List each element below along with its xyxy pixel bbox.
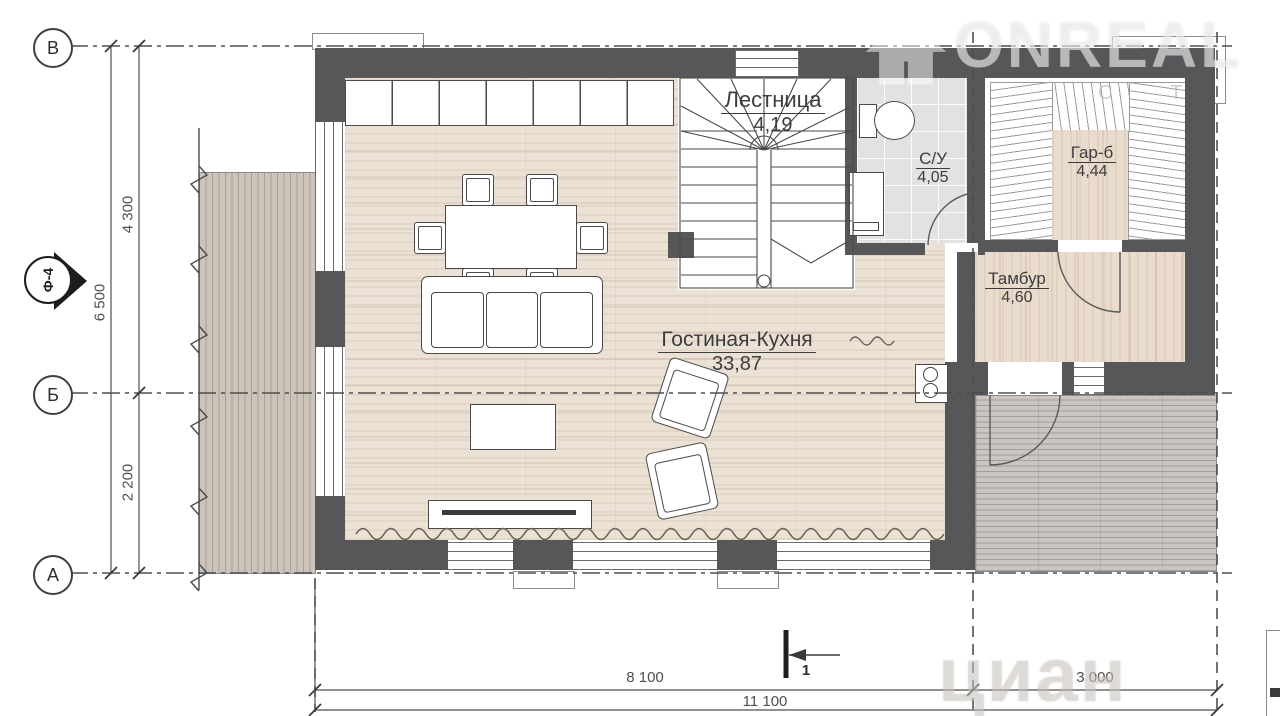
room-area: 4,19 [673,114,873,136]
wall-bath-bottom-2 [978,243,985,255]
dim-left-lower: 2 200 [120,453,137,513]
window-left-upper [315,122,345,271]
wall-bottom-pier-3 [717,540,777,570]
room-name: Гостиная-Кухня [658,328,815,353]
wall-tambour-bottom-2 [1062,362,1074,395]
watermark-brand-subtext: С Т [1098,82,1208,105]
wall-left-pier-2 [315,271,345,347]
room-name: Лестница [721,88,824,114]
floor-plan-canvas: В Б А Ф-4 1 6 500 4 300 2 200 8 100 3 00… [0,0,1280,716]
window-sill-left [513,571,575,589]
dim-left-upper: 4 300 [120,185,137,245]
wall-left-pier-1 [315,48,345,122]
dining-table [445,205,577,269]
wall-tambour-bottom-1 [945,362,988,395]
window-bottom-1 [448,540,513,570]
window-left-lower [315,347,345,496]
wall-wardrobe-bottom-1 [985,240,1058,252]
wall-bottom-pier-1 [315,540,448,570]
dining-chair [462,174,494,206]
wall-bottom-pier-2 [513,540,573,570]
view-marker-label: Ф-4 [40,268,56,292]
wall-tambour-bottom-3 [1104,362,1215,395]
window-top-stair [735,50,799,78]
window-tambour [1074,362,1104,395]
view-marker-bubble: Ф-4 [24,256,72,304]
watermark-brand-text: ONREAL [954,8,1242,82]
toilet-bowl [874,101,915,140]
wall-stair-stub [668,232,694,258]
burner [923,367,938,382]
room-label-tambour: Тамбур 4,60 [957,269,1077,307]
title-block-corner [1266,630,1280,716]
room-name: Гар-б [1068,143,1117,163]
entrance-porch [975,395,1217,572]
room-area: 4,05 [873,169,993,187]
room-label-stairs: Лестница 4,19 [673,88,873,136]
axis-bubble-row-mid: Б [33,375,73,415]
sofa [421,276,603,354]
window-sill-right [717,571,779,589]
coffee-table [470,404,556,450]
axis-bubble-row-bottom: А [33,555,73,595]
room-name: С/У [916,149,950,169]
window-bottom-3 [777,540,930,570]
terrace-deck [199,172,316,574]
window-bottom-2 [573,540,717,570]
room-label-bathroom: С/У 4,05 [873,149,993,187]
wall-bath-bottom-1 [845,243,925,255]
axis-bubble-row-top: В [33,28,73,68]
house-icon [858,2,954,98]
dining-chair [526,174,558,206]
dining-chair [576,222,608,254]
dining-chair [414,222,446,254]
tv-screen [442,510,576,515]
room-area: 4,60 [957,289,1077,307]
kitchen-cabinets [345,80,674,126]
room-name: Тамбур [985,269,1049,289]
burner [923,383,938,398]
section-number: 1 [796,662,816,679]
dim-bottom-total: 11 100 [725,693,805,710]
axis-label: Б [47,385,59,406]
dim-bottom-left: 8 100 [610,669,680,686]
axis-label: А [47,565,59,586]
room-label-wardrobe: Гар-б 4,44 [1032,143,1152,181]
watermark-corner-text: циан [938,632,1128,716]
title-block-mark [1270,688,1280,697]
axis-label: В [47,38,59,59]
wall-wardrobe-bottom-2 [1122,240,1185,252]
room-area: 33,87 [637,353,837,375]
room-label-living: Гостиная-Кухня 33,87 [637,328,837,375]
dim-left-total: 6 500 [92,273,109,333]
room-area: 4,44 [1032,163,1152,181]
view-marker: Ф-4 [24,252,94,312]
